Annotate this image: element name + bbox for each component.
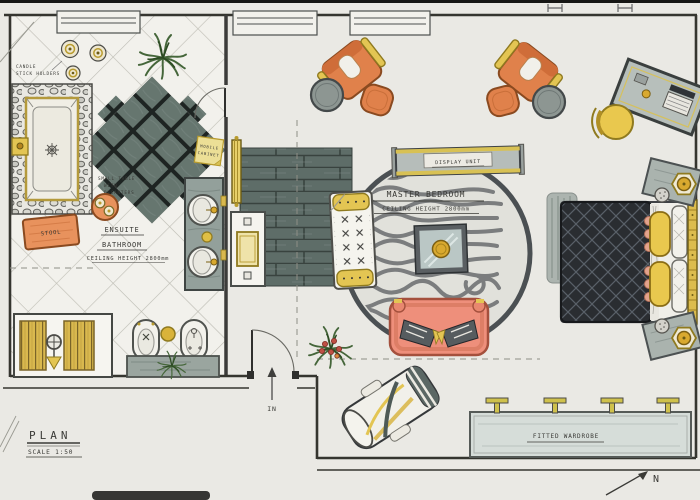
shower-bench (64, 321, 94, 370)
fitted-wardrobe: FITTED WARDROBE (470, 398, 691, 457)
shower-bench (20, 321, 46, 370)
striped-daybed (333, 356, 447, 460)
desk-chair (592, 105, 633, 139)
knob-icon (244, 272, 251, 279)
white-pillow (672, 206, 687, 258)
decanter-note-line2: WITH (104, 183, 118, 189)
floor-plan-sheet: IN CANDLE STICK HOLDERS STOOL SMALL TABL… (0, 0, 700, 500)
soap-dish-icon (202, 232, 212, 242)
entry-label: IN (267, 405, 276, 413)
towel-rail-icon (221, 250, 226, 260)
side-table (533, 86, 565, 118)
decanter-note-line1: SMALL TABLE (98, 176, 135, 182)
coffee-table (414, 224, 468, 274)
bed (561, 200, 697, 324)
room-name-line2: BATHROOM (102, 241, 142, 249)
bidet (181, 320, 207, 360)
chaise-longue (330, 191, 377, 289)
plan-title: PLAN (29, 429, 72, 442)
ensuite-stool: STOOL (23, 214, 80, 249)
flower-bouquet (309, 327, 352, 368)
wardrobe-handle-icon (486, 398, 679, 413)
window (350, 11, 430, 35)
entry-direction-arrow: IN (267, 367, 276, 413)
table-lamp-icon (672, 174, 696, 195)
title-block: PLAN SCALE 1:50 (26, 429, 82, 457)
yellow-pillow (650, 262, 670, 306)
gold-tray-icon (432, 240, 450, 258)
mobile-cabinet-note: MOBILE CABINET (194, 136, 223, 165)
floor-drain-icon (161, 327, 175, 341)
bathtub (12, 84, 92, 214)
knob-icon (244, 218, 251, 225)
north-arrow: N (606, 471, 660, 495)
decor-sphere-icon (655, 188, 669, 202)
decor-sphere-icon (655, 319, 669, 333)
window (233, 11, 317, 35)
white-pillow (672, 260, 687, 312)
bath-tap-icon (12, 138, 28, 155)
hall-dresser (231, 212, 265, 286)
table-lamp-icon (672, 328, 696, 349)
ceiling-note: CEILING HEIGHT 2800mm (87, 256, 169, 262)
yellow-pillow (650, 212, 670, 256)
steam-shower-room (14, 314, 112, 377)
bath-drain-icon (45, 143, 59, 157)
plan-scale: SCALE 1:50 (28, 449, 73, 456)
display-unit-label: DISPLAY UNIT (435, 159, 481, 166)
floor-plan-drawing: IN CANDLE STICK HOLDERS STOOL SMALL TABL… (0, 0, 700, 500)
basin (188, 195, 218, 225)
sofa (390, 299, 488, 355)
towel-rail-icon (221, 196, 226, 206)
room-name: MASTER BEDROOM (387, 190, 466, 199)
curtain-rail-marks (548, 4, 632, 12)
candle-note-line2: STICK HOLDERS (16, 71, 60, 77)
low-shelf (127, 351, 219, 378)
basin (188, 247, 218, 277)
north-label: N (653, 474, 660, 485)
hall-radiator (232, 136, 241, 207)
window (57, 11, 140, 33)
tufted-headboard (688, 200, 697, 324)
toilet (133, 320, 159, 361)
ceiling-note: CEILING HEIGHT 2800mm (382, 207, 470, 213)
vanity-unit (185, 178, 226, 290)
room-name-line1: ENSUITE (104, 226, 139, 234)
wardrobe-label: FITTED WARDROBE (533, 433, 599, 440)
display-unit: DISPLAY UNIT (392, 144, 525, 177)
quilted-duvet (561, 202, 651, 322)
side-table (311, 79, 343, 111)
candle-note-line1: CANDLE (16, 64, 36, 70)
